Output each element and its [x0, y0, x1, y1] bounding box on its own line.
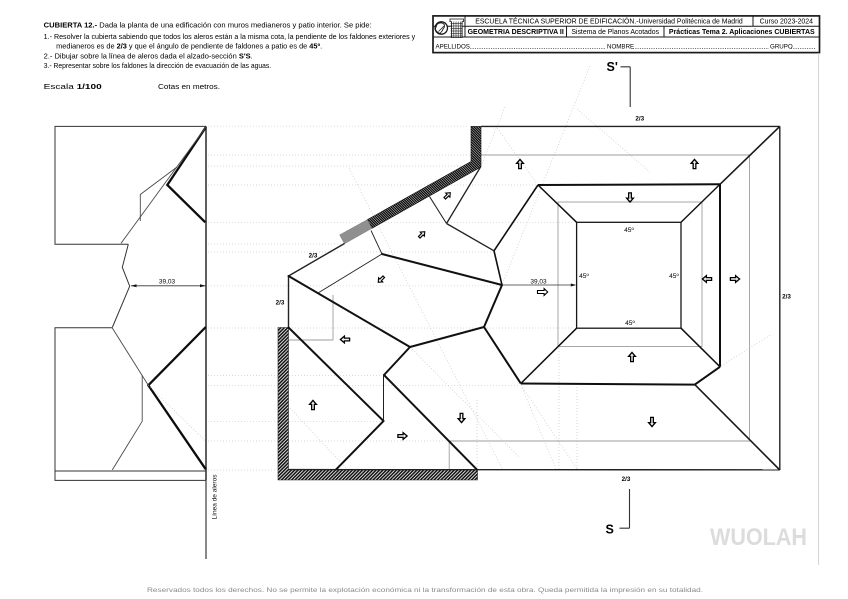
svg-text:APELLIDOS: APELLIDOS [436, 43, 470, 50]
svg-text:3.- Representar sobre los fald: 3.- Representar sobre los faldones la di… [44, 62, 272, 70]
svg-text:Escala 1/100: Escala 1/100 [44, 83, 102, 91]
svg-text:CUBIERTA 12.- Dada la planta d: CUBIERTA 12.- Dada la planta de una edif… [44, 21, 372, 29]
svg-text:2/3: 2/3 [309, 253, 318, 260]
svg-text:2/3: 2/3 [276, 300, 285, 307]
svg-text:GEOMETRIA DESCRIPTIVA II: GEOMETRIA DESCRIPTIVA II [468, 29, 564, 36]
svg-text:GRUPO: GRUPO [770, 43, 793, 50]
svg-text:NOMBRE: NOMBRE [607, 43, 634, 50]
svg-text:Prácticas Tema 2. Aplicaciones: Prácticas Tema 2. Aplicaciones CUBIERTAS [669, 29, 815, 36]
svg-text:Sistema de Planos Acotados: Sistema de Planos Acotados [571, 29, 659, 36]
svg-text:45º: 45º [624, 227, 634, 234]
svg-text:Curso 2023-2024: Curso 2023-2024 [760, 18, 813, 25]
svg-text:S: S [606, 523, 614, 537]
svg-text:45º: 45º [625, 320, 635, 327]
svg-text:45º: 45º [669, 273, 679, 280]
svg-text:2/3: 2/3 [635, 116, 644, 123]
svg-text:WUOLAH: WUOLAH [710, 524, 807, 551]
svg-text:Reservados todos los derechos.: Reservados todos los derechos. No se per… [147, 587, 703, 594]
svg-text:1.- Resolver la cubierta sabie: 1.- Resolver la cubierta sabiendo que to… [44, 33, 416, 41]
svg-text:ESCUELA TÉCNICA SUPERIOR DE ED: ESCUELA TÉCNICA SUPERIOR DE EDIFICACIÓN.… [475, 16, 743, 25]
svg-text:2/3: 2/3 [622, 476, 631, 483]
svg-text:S': S' [607, 60, 618, 74]
svg-text:39,03: 39,03 [530, 279, 547, 286]
svg-text:Línea de aleros: Línea de aleros [212, 475, 219, 520]
svg-text:2.- Dibujar sobre la línea de: 2.- Dibujar sobre la línea de aleros dad… [44, 52, 253, 60]
svg-text:Cotas en metros.: Cotas en metros. [158, 83, 220, 91]
svg-text:39,03: 39,03 [159, 279, 176, 286]
svg-text:2/3: 2/3 [782, 294, 791, 301]
svg-text:45º: 45º [579, 273, 589, 280]
svg-text:medianeros es de 2/3 y que el: medianeros es de 2/3 y que el ángulo de … [56, 43, 322, 51]
